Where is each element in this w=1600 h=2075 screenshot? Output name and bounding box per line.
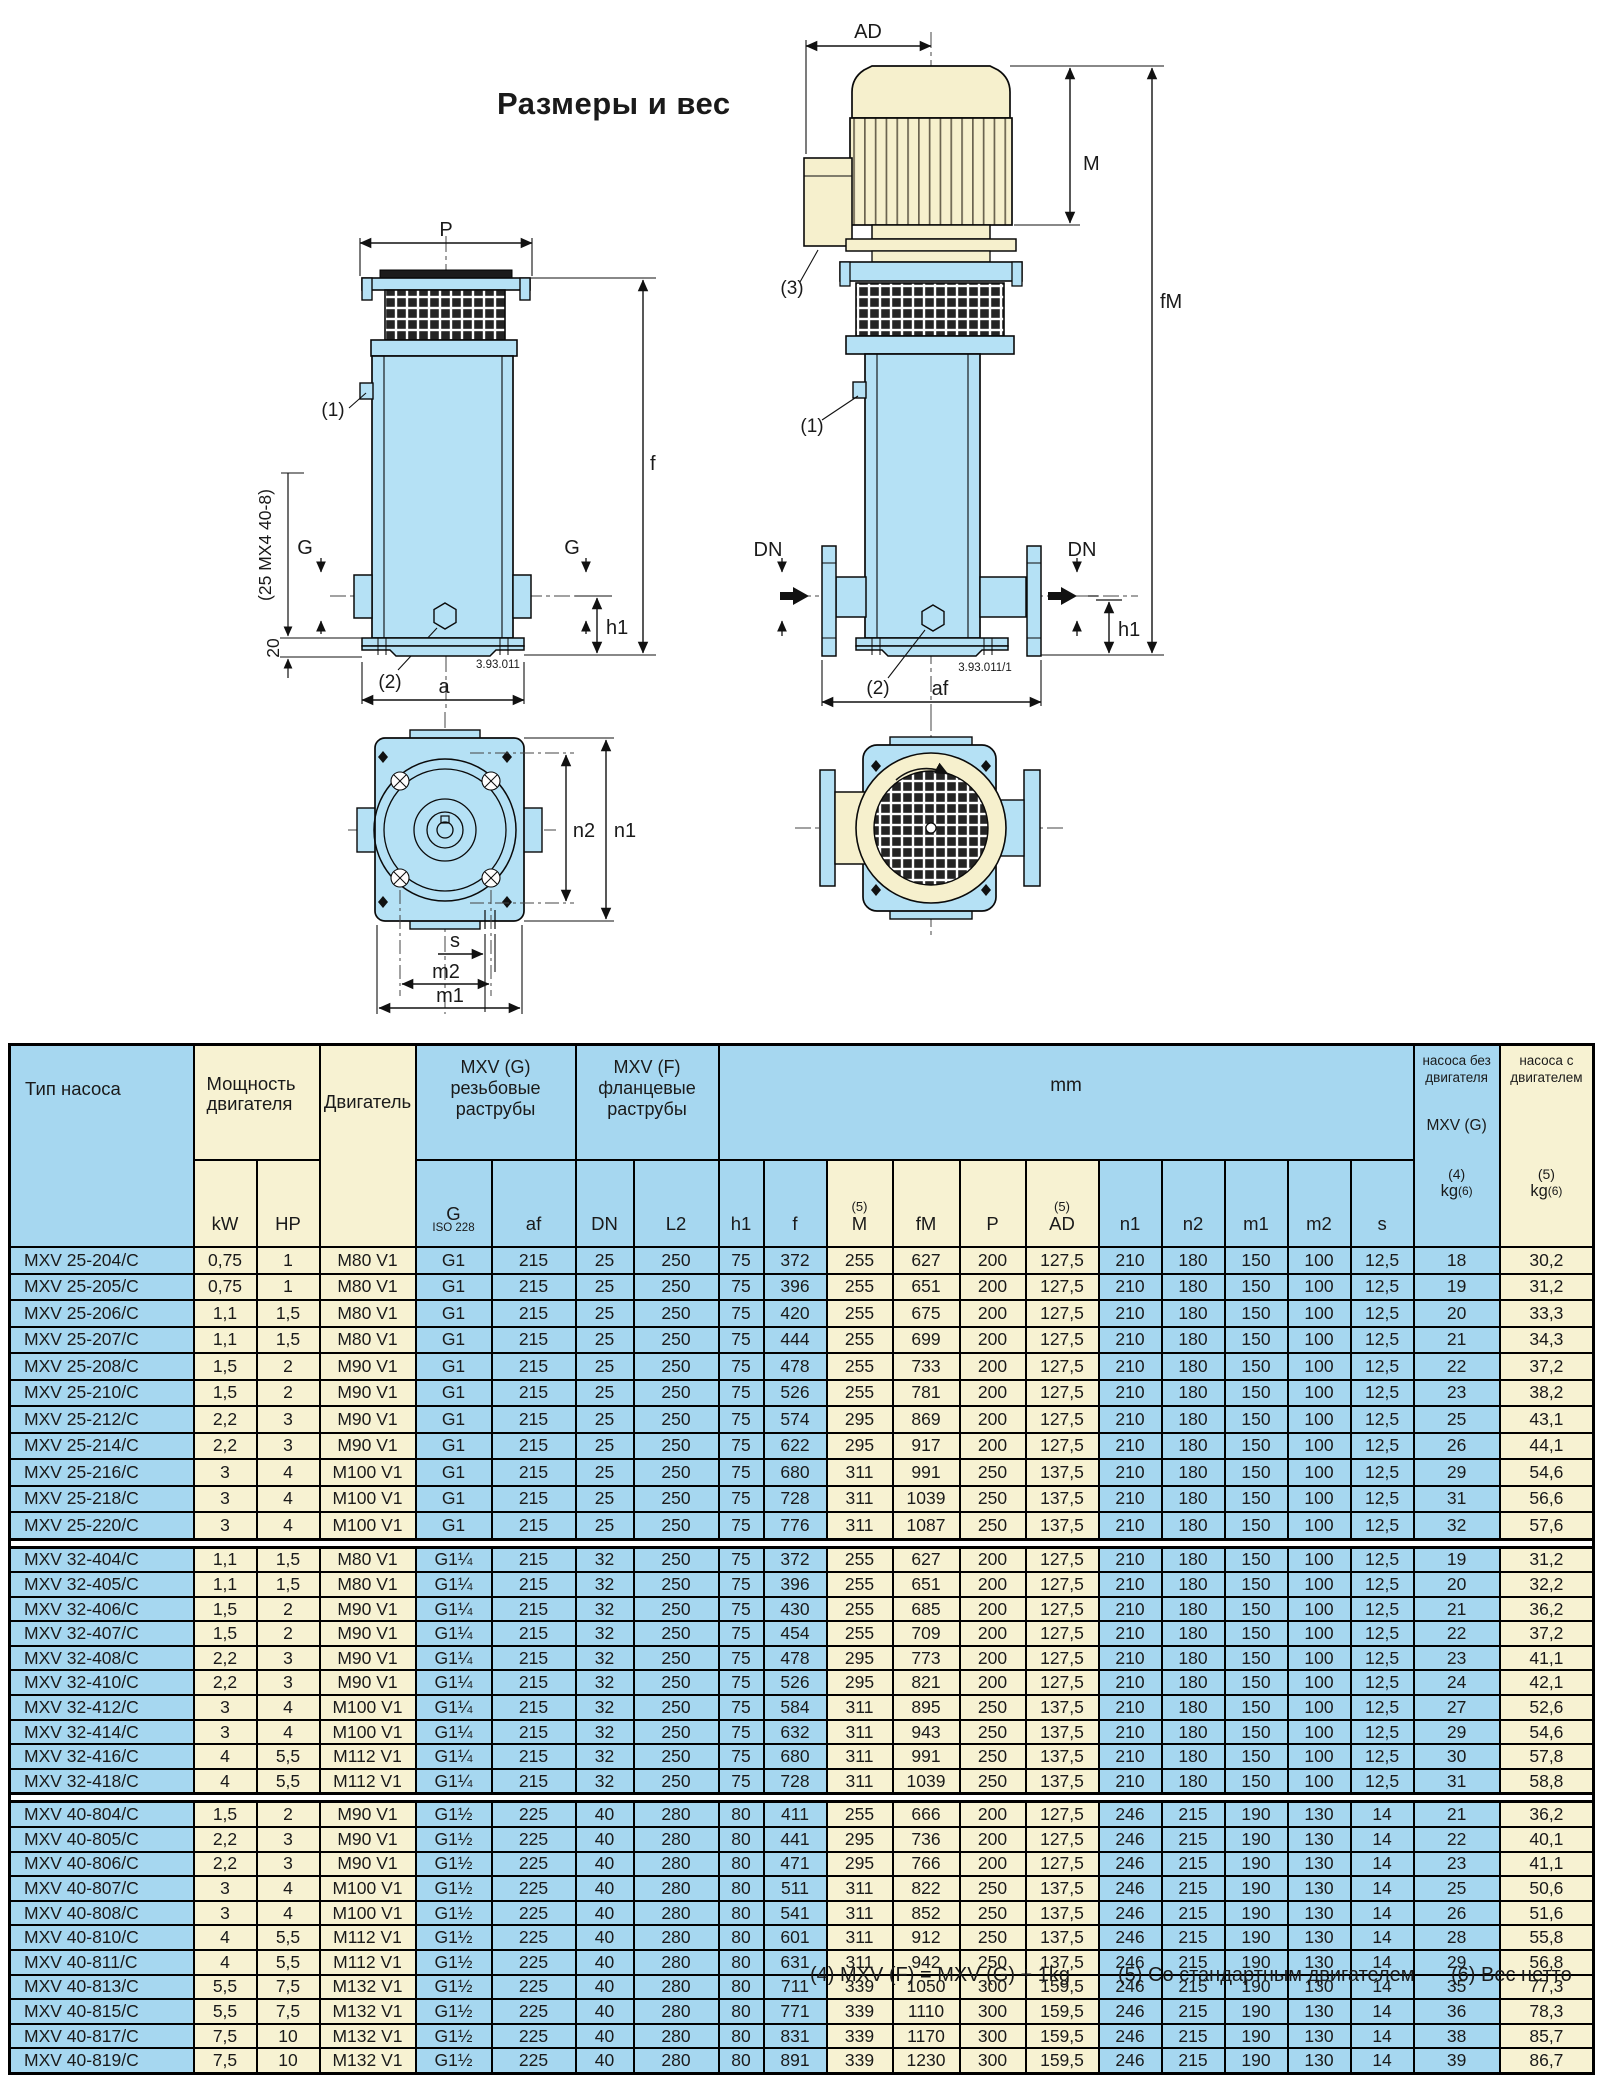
value-cell: 2 [257,1597,320,1622]
table-row: MXV 40-815/C5,57,5M132 V1G1½225402808077… [10,1999,1594,2024]
value-cell: 280 [634,2048,719,2073]
value-cell: 127,5 [1026,1247,1099,1274]
value-cell: 180 [1162,1695,1225,1720]
value-cell: 100 [1288,1695,1351,1720]
value-cell: G1 [416,1486,492,1513]
value-cell: 159,5 [1026,2024,1099,2049]
value-cell: 478 [764,1353,827,1380]
value-cell: 22 [1414,1827,1500,1852]
weight-motor-unit: kg [1530,1182,1547,1200]
weight-bare-series: MXV (G) [1427,1118,1487,1135]
value-cell: 250 [634,1646,719,1671]
value-cell: 200 [960,1852,1026,1877]
weight-bare-label: насоса без двигателя [1422,1053,1490,1087]
value-cell: 250 [634,1769,719,1794]
value-cell: 12,5 [1351,1744,1414,1769]
value-cell: 255 [827,1300,893,1327]
value-cell: M90 V1 [320,1597,416,1622]
value-cell: 5,5 [257,1769,320,1794]
value-cell: 40 [576,1876,634,1901]
value-cell: 215 [1162,1827,1225,1852]
value-cell: 12,5 [1351,1433,1414,1460]
value-cell: 100 [1288,1744,1351,1769]
dim-label-g-left: G [297,537,313,559]
dim-label-s: s [450,930,460,952]
value-cell: 210 [1099,1597,1162,1622]
value-cell: 75 [719,1380,764,1407]
value-cell: 295 [827,1406,893,1433]
value-cell: 2,2 [194,1646,257,1671]
value-cell: 100 [1288,1406,1351,1433]
value-cell: 210 [1099,1769,1162,1794]
value-cell: 680 [764,1744,827,1769]
value-cell: 2,2 [194,1433,257,1460]
value-cell: 20 [1414,1572,1500,1597]
table-row: MXV 40-804/C1,52M90 V1G1½225402808041125… [10,1802,1594,1827]
value-cell: 2 [257,1380,320,1407]
table-row: MXV 25-205/C0,751M80 V1G1215252507539625… [10,1274,1594,1301]
value-cell: 127,5 [1026,1646,1099,1671]
value-cell: 137,5 [1026,1459,1099,1486]
pump-type-cell: MXV 25-212/C [10,1406,194,1433]
value-cell: 210 [1099,1695,1162,1720]
value-cell: 250 [634,1300,719,1327]
value-cell: 137,5 [1026,1486,1099,1513]
value-cell: 190 [1225,1925,1288,1950]
value-cell: M80 V1 [320,1572,416,1597]
value-cell: 1,5 [194,1597,257,1622]
value-cell: 210 [1099,1512,1162,1539]
value-cell: 150 [1225,1512,1288,1539]
value-cell: 215 [492,1670,576,1695]
value-cell: M80 V1 [320,1300,416,1327]
value-cell: M112 V1 [320,1744,416,1769]
value-cell: 100 [1288,1769,1351,1794]
value-cell: 38 [1414,2024,1500,2049]
value-cell: 56,6 [1500,1486,1594,1513]
value-cell: 12,5 [1351,1646,1414,1671]
value-cell: 19 [1414,1274,1500,1301]
value-cell: 150 [1225,1646,1288,1671]
value-cell: G1½ [416,1876,492,1901]
value-cell: 471 [764,1852,827,1877]
value-cell: 100 [1288,1459,1351,1486]
value-cell: 215 [492,1572,576,1597]
value-cell: 295 [827,1646,893,1671]
value-cell: 150 [1225,1486,1288,1513]
sub-col-header-f: f [764,1160,827,1247]
value-cell: 255 [827,1274,893,1301]
value-cell: 396 [764,1274,827,1301]
value-cell: 180 [1162,1486,1225,1513]
value-cell: 255 [827,1247,893,1274]
value-cell: M132 V1 [320,2024,416,2049]
value-cell: 12,5 [1351,1327,1414,1354]
weight-motor-label: насоса с двигателем [1510,1053,1582,1087]
value-cell: 210 [1099,1300,1162,1327]
pump-type-cell: MXV 40-815/C [10,1999,194,2024]
value-cell: 444 [764,1327,827,1354]
value-cell: 32 [576,1769,634,1794]
value-cell: 250 [634,1695,719,1720]
value-cell: M80 V1 [320,1327,416,1354]
value-cell: 771 [764,1999,827,2024]
value-cell: 781 [893,1380,960,1407]
value-cell: 130 [1288,1827,1351,1852]
value-cell: 891 [764,2048,827,2073]
value-cell: 150 [1225,1769,1288,1794]
value-cell: 300 [960,1999,1026,2024]
value-cell: 776 [764,1512,827,1539]
value-cell: G1¼ [416,1597,492,1622]
dim-label-h1-flanged: h1 [1118,619,1140,641]
value-cell: 1170 [893,2024,960,2049]
value-cell: 250 [634,1486,719,1513]
drawing-flanged-pump-with-motor-side-view: AD (3) (1) DN [754,21,1183,720]
value-cell: 180 [1162,1670,1225,1695]
value-cell: 225 [492,2024,576,2049]
value-cell: 215 [492,1744,576,1769]
value-cell: 55,8 [1500,1925,1594,1950]
value-cell: 75 [719,1353,764,1380]
value-cell: 25 [576,1380,634,1407]
value-cell: 246 [1099,1901,1162,1926]
value-cell: 80 [719,1901,764,1926]
value-cell: 584 [764,1695,827,1720]
pump-type-cell: MXV 32-408/C [10,1646,194,1671]
value-cell: 215 [492,1695,576,1720]
value-cell: 300 [960,2024,1026,2049]
value-cell: G1½ [416,2024,492,2049]
pump-type-cell: MXV 25-208/C [10,1353,194,1380]
pump-type-cell: MXV 32-410/C [10,1670,194,1695]
value-cell: M90 V1 [320,1827,416,1852]
value-cell: 180 [1162,1380,1225,1407]
value-cell: 80 [719,1827,764,1852]
value-cell: 675 [893,1300,960,1327]
value-cell: 75 [719,1486,764,1513]
pump-type-cell: MXV 40-817/C [10,2024,194,2049]
value-cell: 25 [1414,1406,1500,1433]
value-cell: 210 [1099,1720,1162,1745]
sub-col-header-fm: fM [893,1160,960,1247]
value-cell: 250 [960,1925,1026,1950]
table-row: MXV 25-210/C1,52M90 V1G12152525075526255… [10,1380,1594,1407]
value-cell: 2 [257,1802,320,1827]
pump-type-cell: MXV 40-819/C [10,2048,194,2073]
sub-col-header-g: GISO 228 [416,1160,492,1247]
value-cell: 255 [827,1327,893,1354]
value-cell: 75 [719,1327,764,1354]
value-cell: 100 [1288,1720,1351,1745]
value-cell: 250 [634,1459,719,1486]
value-cell: 651 [893,1572,960,1597]
value-cell: 4 [194,1769,257,1794]
value-cell: 478 [764,1646,827,1671]
pump-type-cell: MXV 40-804/C [10,1802,194,1827]
value-cell: 32 [576,1621,634,1646]
value-cell: 215 [492,1486,576,1513]
value-cell: 180 [1162,1646,1225,1671]
value-cell: M100 V1 [320,1695,416,1720]
dim-label-n2: n2 [573,820,595,842]
value-cell: 41,1 [1500,1852,1594,1877]
value-cell: 280 [634,1925,719,1950]
value-cell: 180 [1162,1274,1225,1301]
value-cell: 250 [634,1547,719,1572]
value-cell: 685 [893,1597,960,1622]
value-cell: 32 [576,1695,634,1720]
value-cell: 0,75 [194,1247,257,1274]
value-cell: 250 [634,1572,719,1597]
value-cell: 23 [1414,1380,1500,1407]
note-20: 20 [263,638,283,658]
value-cell: G1¼ [416,1769,492,1794]
value-cell: 210 [1099,1274,1162,1301]
value-cell: 38,2 [1500,1380,1594,1407]
value-cell: 25 [576,1300,634,1327]
value-cell: G1 [416,1274,492,1301]
table-row: MXV 40-807/C34M100 V1G1½2254028080511311… [10,1876,1594,1901]
value-cell: 895 [893,1695,960,1720]
sub-col-header-dn: DN [576,1160,634,1247]
value-cell: 32 [576,1646,634,1671]
value-cell: 5,5 [257,1744,320,1769]
value-cell: 12,5 [1351,1353,1414,1380]
col-header-mxv-f-flanged: MXV (F) фланцевые раструбы [576,1045,719,1161]
value-cell: 3 [257,1406,320,1433]
value-cell: 250 [960,1512,1026,1539]
value-cell: 250 [960,1901,1026,1926]
value-cell: 250 [634,1512,719,1539]
value-cell: 40 [576,1852,634,1877]
value-cell: 3 [194,1486,257,1513]
value-cell: 75 [719,1247,764,1274]
value-cell: 917 [893,1433,960,1460]
value-cell: 215 [492,1327,576,1354]
value-cell: 180 [1162,1512,1225,1539]
value-cell: 12,5 [1351,1597,1414,1622]
value-cell: 25 [576,1433,634,1460]
table-row: MXV 32-414/C34M100 V1G1¼2153225075632311… [10,1720,1594,1745]
value-cell: 210 [1099,1646,1162,1671]
value-cell: 80 [719,1876,764,1901]
value-cell: 200 [960,1572,1026,1597]
value-cell: 4 [257,1901,320,1926]
value-cell: 130 [1288,2024,1351,2049]
value-cell: 295 [827,1670,893,1695]
value-cell: 39 [1414,2048,1500,2073]
note-25-mx4: (25 MX4 40-8) [255,489,275,601]
value-cell: 1,5 [257,1547,320,1572]
value-cell: G1 [416,1247,492,1274]
value-cell: 4 [257,1720,320,1745]
value-cell: 12,5 [1351,1621,1414,1646]
value-cell: 1,5 [257,1327,320,1354]
value-cell: 215 [492,1547,576,1572]
value-cell: 75 [719,1646,764,1671]
value-cell: 29 [1414,1720,1500,1745]
value-cell: 411 [764,1802,827,1827]
value-cell: M90 V1 [320,1433,416,1460]
value-cell: 250 [960,1744,1026,1769]
value-cell: 130 [1288,1901,1351,1926]
value-cell: 180 [1162,1353,1225,1380]
col-header-mxv-g-threaded: MXV (G) резьбовые раструбы [416,1045,576,1161]
footnote-5: (5) Со стандартным двигателем [1118,1964,1415,1987]
value-cell: 250 [634,1247,719,1274]
value-cell: 1,5 [257,1300,320,1327]
value-cell: 12,5 [1351,1247,1414,1274]
value-cell: 215 [1162,2048,1225,2073]
value-cell: 2,2 [194,1827,257,1852]
dim-label-dn-right: DN [1068,539,1097,561]
value-cell: 430 [764,1597,827,1622]
value-cell: 18 [1414,1247,1500,1274]
value-cell: 200 [960,1621,1026,1646]
value-cell: 12,5 [1351,1695,1414,1720]
value-cell: 250 [634,1597,719,1622]
value-cell: 200 [960,1433,1026,1460]
pump-type-cell: MXV 40-808/C [10,1901,194,1926]
value-cell: 200 [960,1327,1026,1354]
value-cell: 250 [960,1720,1026,1745]
value-cell: 37,2 [1500,1621,1594,1646]
value-cell: 3 [257,1433,320,1460]
value-cell: 30 [1414,1744,1500,1769]
value-cell: 150 [1225,1406,1288,1433]
value-cell: 54,6 [1500,1459,1594,1486]
callout-1-flanged: (1) [800,416,823,437]
table-row: MXV 25-208/C1,52M90 V1G12152525075478255… [10,1353,1594,1380]
value-cell: 311 [827,1901,893,1926]
table-row: MXV 32-418/C45,5M112 V1G1¼21532250757283… [10,1769,1594,1794]
value-cell: 137,5 [1026,1769,1099,1794]
value-cell: 250 [634,1433,719,1460]
col-header-motor: Двигатель [320,1045,416,1248]
table-row: MXV 32-405/C1,11,5M80 V1G1¼2153225075396… [10,1572,1594,1597]
value-cell: 127,5 [1026,1572,1099,1597]
value-cell: 40 [576,1999,634,2024]
value-cell: 773 [893,1646,960,1671]
value-cell: G1 [416,1459,492,1486]
value-cell: 311 [827,1459,893,1486]
value-cell: 78,3 [1500,1999,1594,2024]
value-cell: 215 [1162,1901,1225,1926]
value-cell: 339 [827,2024,893,2049]
value-cell: 2,2 [194,1406,257,1433]
value-cell: 210 [1099,1486,1162,1513]
pump-type-cell: MXV 40-807/C [10,1876,194,1901]
value-cell: G1 [416,1406,492,1433]
value-cell: 454 [764,1621,827,1646]
value-cell: 130 [1288,1876,1351,1901]
table-row: MXV 25-218/C34M100 V1G121525250757283111… [10,1486,1594,1513]
value-cell: 280 [634,1876,719,1901]
value-cell: M100 V1 [320,1901,416,1926]
value-cell: 250 [634,1274,719,1301]
value-cell: 420 [764,1300,827,1327]
value-cell: 215 [492,1459,576,1486]
value-cell: 190 [1225,1827,1288,1852]
value-cell: 622 [764,1433,827,1460]
value-cell: 3 [194,1876,257,1901]
drawing-pump-footprint-top-view: n2 n1 s m2 m1 [348,712,636,1014]
value-cell: 75 [719,1597,764,1622]
value-cell: G1½ [416,1901,492,1926]
value-cell: 127,5 [1026,1433,1099,1460]
pump-type-cell: MXV 40-805/C [10,1827,194,1852]
value-cell: 150 [1225,1274,1288,1301]
value-cell: 627 [893,1247,960,1274]
pump-type-cell: MXV 25-207/C [10,1327,194,1354]
value-cell: 100 [1288,1380,1351,1407]
pump-series-block: MXV 25-204/C0,751M80 V1G1215252507537225… [10,1247,1594,1539]
weight-motor-unit-note: (6) [1548,1184,1563,1198]
weight-bare-unit: kg [1441,1182,1458,1200]
value-cell: 12,5 [1351,1486,1414,1513]
value-cell: 225 [492,1827,576,1852]
value-cell: 75 [719,1695,764,1720]
value-cell: 250 [634,1720,719,1745]
value-cell: 3 [257,1827,320,1852]
value-cell: M80 V1 [320,1547,416,1572]
value-cell: M132 V1 [320,2048,416,2073]
value-cell: 250 [960,1486,1026,1513]
pump-series-block: MXV 32-404/C1,11,5M80 V1G1¼2153225075372… [10,1547,1594,1794]
value-cell: 246 [1099,1852,1162,1877]
value-cell: 574 [764,1406,827,1433]
value-cell: 14 [1351,1999,1414,2024]
pump-type-cell: MXV 25-206/C [10,1300,194,1327]
value-cell: 130 [1288,1802,1351,1827]
value-cell: 31,2 [1500,1547,1594,1572]
value-cell: 822 [893,1876,960,1901]
value-cell: 180 [1162,1300,1225,1327]
value-cell: 200 [960,1380,1026,1407]
value-cell: 100 [1288,1327,1351,1354]
value-cell: 215 [492,1353,576,1380]
value-cell: 159,5 [1026,1999,1099,2024]
value-cell: 200 [960,1802,1026,1827]
value-cell: 1 [257,1247,320,1274]
value-cell: 85,7 [1500,2024,1594,2049]
dim-label-f: f [650,453,656,475]
value-cell: 190 [1225,1802,1288,1827]
dim-label-p: P [439,219,452,241]
dim-label-g-right: G [564,537,580,559]
value-cell: 250 [634,1621,719,1646]
pump-type-cell: MXV 32-414/C [10,1720,194,1745]
value-cell: 255 [827,1572,893,1597]
callout-2: (2) [378,672,401,693]
value-cell: 1,5 [194,1802,257,1827]
value-cell: 150 [1225,1670,1288,1695]
value-cell: 150 [1225,1572,1288,1597]
value-cell: 32 [576,1720,634,1745]
value-cell: 3 [194,1901,257,1926]
value-cell: 250 [960,1769,1026,1794]
dim-label-fm: fM [1160,291,1182,313]
value-cell: 127,5 [1026,1547,1099,1572]
value-cell: 250 [634,1327,719,1354]
value-cell: 25 [576,1406,634,1433]
value-cell: 215 [492,1646,576,1671]
value-cell: 1,5 [194,1621,257,1646]
value-cell: 1039 [893,1769,960,1794]
value-cell: M90 V1 [320,1852,416,1877]
value-cell: 14 [1351,1901,1414,1926]
